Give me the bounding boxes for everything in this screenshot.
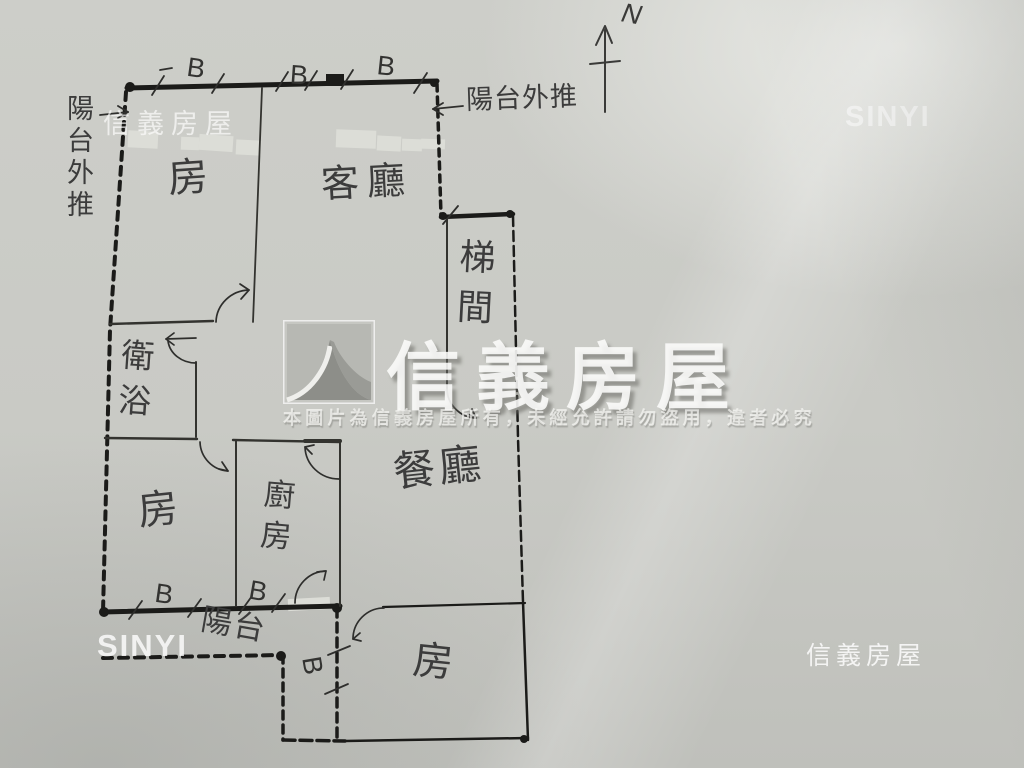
balcony-extension-note-left: 陽台外推 xyxy=(64,94,91,222)
watermark-top-right: SINYI xyxy=(845,101,931,134)
room-label-living: 客廳 xyxy=(320,162,414,205)
window-mark-b-top-1: B xyxy=(185,54,207,83)
door-arrow-bedroom-mid xyxy=(219,462,228,471)
floorplan-photo: 陽台外推 陽台外推 房 客廳 梯間 衛浴 房 廚房 餐廳 陽台 房 B B B … xyxy=(0,0,1024,768)
room-label-bedroom-top: 房 xyxy=(167,157,210,200)
watermark-bottom-left: SINYI xyxy=(97,628,188,664)
watermark-disclaimer: 本圖片為信義房屋所有，未經允許請勿盜用，違者必究 xyxy=(283,404,816,430)
window-mark-b-top-3: B xyxy=(376,52,397,81)
north-arrow xyxy=(590,26,620,112)
door-arrow-bedroom-bottom xyxy=(353,633,361,641)
room-label-bath: 衛浴 xyxy=(114,337,153,429)
room-label-dining: 餐廳 xyxy=(391,442,487,493)
window-mark-b-top-2: B xyxy=(289,61,309,89)
watermark-bottom-right: 信義房屋 xyxy=(806,636,926,672)
watermark-top-left: 信義房屋 xyxy=(103,102,239,141)
room-label-bedroom-mid: 房 xyxy=(136,488,180,532)
room-label-kitchen: 廚房 xyxy=(255,477,293,561)
door-arrow-kitchen-bottom xyxy=(317,571,326,580)
room-label-bedroom-bottom: 房 xyxy=(411,640,455,684)
sinyi-roof-logo-icon xyxy=(283,320,375,409)
window-mark-b-bottom-1: B xyxy=(153,580,175,609)
balcony-extension-note-top: 陽台外推 xyxy=(466,83,579,114)
